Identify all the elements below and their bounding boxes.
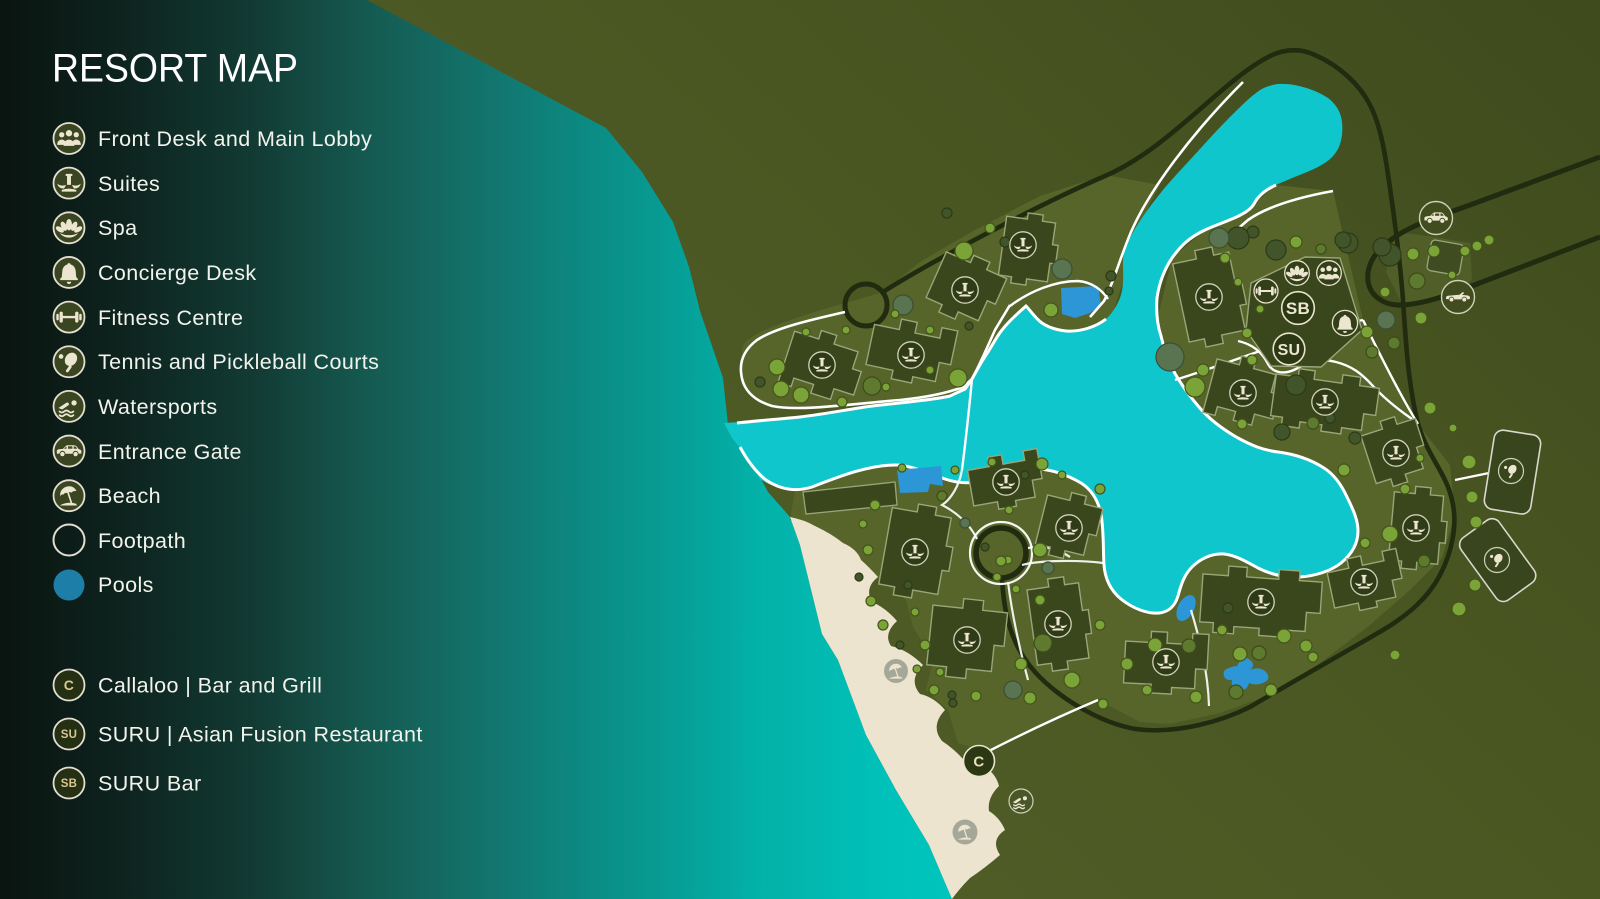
svg-text:SB: SB (1286, 299, 1310, 318)
svg-text:C: C (64, 677, 74, 693)
svg-text:Beach: Beach (98, 484, 161, 508)
svg-text:SU: SU (1278, 342, 1301, 359)
svg-text:SU: SU (61, 729, 78, 741)
svg-text:Watersports: Watersports (98, 395, 218, 419)
svg-text:C: C (973, 753, 984, 770)
svg-text:Entrance Gate: Entrance Gate (98, 440, 242, 464)
svg-text:Callaloo | Bar and Grill: Callaloo | Bar and Grill (98, 674, 322, 698)
svg-text:Fitness Centre: Fitness Centre (98, 306, 243, 330)
svg-text:Concierge Desk: Concierge Desk (98, 261, 257, 285)
svg-text:SURU | Asian Fusion Restaurant: SURU | Asian Fusion Restaurant (98, 723, 423, 747)
svg-text:Suites: Suites (98, 172, 160, 196)
svg-text:RESORT MAP: RESORT MAP (52, 47, 298, 91)
svg-text:Spa: Spa (98, 216, 137, 240)
svg-text:Pools: Pools (98, 573, 154, 597)
svg-text:Front Desk and Main Lobby: Front Desk and Main Lobby (98, 127, 372, 151)
svg-text:SURU Bar: SURU Bar (98, 772, 202, 796)
svg-text:SB: SB (61, 778, 78, 790)
svg-text:Footpath: Footpath (98, 529, 186, 553)
svg-text:Tennis and Pickleball Courts: Tennis and Pickleball Courts (98, 350, 379, 374)
